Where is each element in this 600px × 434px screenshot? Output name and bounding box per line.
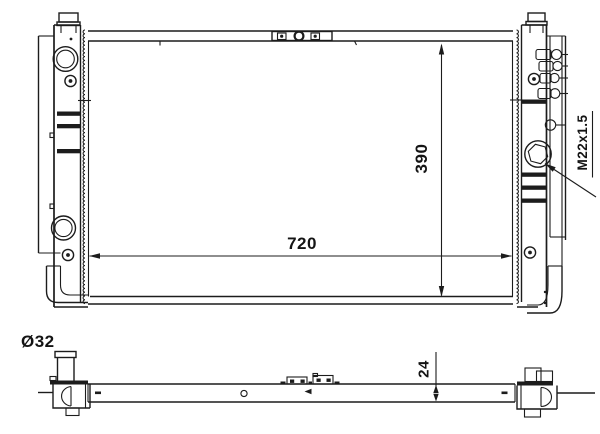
left-tank xyxy=(39,13,89,307)
top-clips xyxy=(281,374,340,395)
label-inlet-diameter: Ø32 xyxy=(21,332,55,351)
inlet-pipe xyxy=(55,352,76,358)
arrow-left xyxy=(89,253,100,258)
arrow-down xyxy=(433,394,438,402)
radiator-core xyxy=(78,30,523,304)
top-mounting-bracket xyxy=(272,32,332,41)
front-view xyxy=(39,13,569,313)
right-tank xyxy=(517,13,568,313)
filler-neck xyxy=(57,13,80,40)
tank-baffle xyxy=(57,149,81,153)
right-bottom-bracket xyxy=(527,266,562,313)
arrow-up xyxy=(439,44,444,55)
right-neck xyxy=(526,13,547,33)
label-thread-spec: M22x1.5 xyxy=(545,111,596,197)
hex-plug xyxy=(528,144,547,163)
right-pin-hole xyxy=(524,247,535,258)
core-left-serrated-edge xyxy=(83,30,85,304)
right-end-assembly xyxy=(517,368,595,417)
radiator-technical-drawing: 390 720 M22x1.5 xyxy=(0,0,600,434)
inlet-pipe-assembly xyxy=(38,352,90,416)
tank-baffle xyxy=(57,112,81,116)
tank-baffle xyxy=(57,124,81,128)
filler-opening xyxy=(53,47,78,72)
arrow-right xyxy=(501,253,512,258)
thread-spec-label: M22x1.5 xyxy=(575,114,590,170)
dim-height-label: 390 xyxy=(412,144,431,174)
arrow-up xyxy=(433,385,438,393)
lower-pin-hole xyxy=(62,249,73,260)
tank-baffle xyxy=(522,186,547,190)
drawing-canvas: 390 720 M22x1.5 xyxy=(0,0,600,434)
dim-width-label: 720 xyxy=(287,234,317,253)
drain-plug xyxy=(525,141,551,167)
strip-hole xyxy=(241,390,247,396)
core-strip xyxy=(88,384,515,402)
dimension-annotations: 390 720 M22x1.5 xyxy=(89,44,596,298)
dim-core-width: 720 xyxy=(89,234,512,259)
dim-depth-label: 24 xyxy=(416,360,433,378)
top-view: 24 Ø32 xyxy=(21,332,595,417)
core-right-serrated-edge xyxy=(517,30,519,304)
tank-baffle xyxy=(522,173,547,177)
lower-mounting-hole xyxy=(52,216,76,240)
vent-hole xyxy=(70,38,73,41)
left-bottom-bracket xyxy=(47,266,89,303)
upper-pin-hole xyxy=(65,75,76,86)
tank-baffle xyxy=(522,100,547,104)
arrow-down xyxy=(439,286,444,297)
tank-baffle xyxy=(522,199,547,203)
dim-core-height: 390 xyxy=(412,44,444,298)
dim-core-depth: 24 xyxy=(416,352,439,402)
